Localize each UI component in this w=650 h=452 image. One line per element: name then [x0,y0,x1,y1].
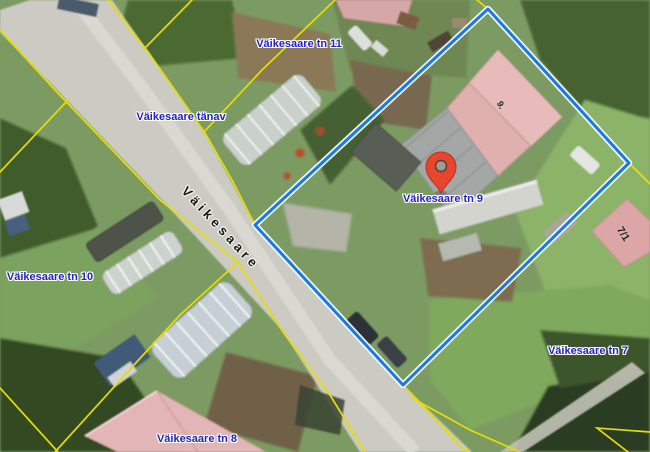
map-scene [0,0,650,452]
aerial-map-canvas[interactable]: Väikesaare tn 11 Väikesaare tänav Väikes… [0,0,650,452]
